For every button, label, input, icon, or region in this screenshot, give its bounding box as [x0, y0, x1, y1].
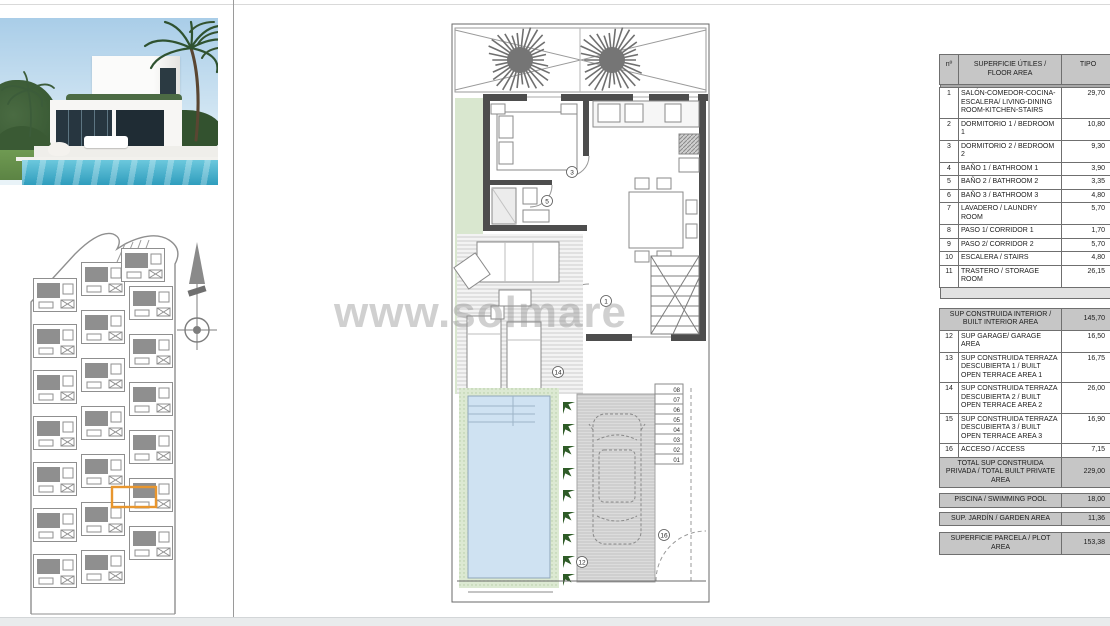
kitchen: [593, 101, 699, 172]
svg-text:06: 06: [673, 408, 680, 414]
swimming-pool: [468, 396, 550, 578]
svg-text:05: 05: [673, 418, 680, 424]
area-table: nºSUPERFICIE ÚTILES / FLOOR AREATIPO1SAL…: [940, 55, 1110, 555]
sheet-divider-line: [233, 0, 234, 617]
table-header-row: nºSUPERFICIE ÚTILES / FLOOR AREATIPO: [940, 54, 1110, 85]
table-row: 7LAVADERO / LAUNDRY ROOM5,70: [940, 202, 1110, 225]
driveway: [577, 394, 655, 582]
svg-text:01: 01: [673, 458, 680, 464]
table-row: 13SUP CONSTRUIDA TERRAZA DESCUBIERTA 1 /…: [940, 352, 1110, 384]
svg-text:1: 1: [604, 299, 608, 306]
table-row: 12SUP GARAGE/ GARAGE AREA16,50: [940, 330, 1110, 353]
svg-text:14: 14: [554, 370, 562, 377]
table-section-row: SUP. JARDÍN / GARDEN AREA11,36: [940, 512, 1110, 527]
plot-footprints: [34, 249, 173, 588]
drawing-sheet: 08 07 06 05 04 03 02 01 3 5 1 14 12 16 w…: [0, 0, 1110, 626]
table-row: 8PASO 1/ CORRIDOR 11,70: [940, 224, 1110, 239]
table-row: 15SUP CONSTRUIDA TERRAZA DESCUBIERTA 3 /…: [940, 413, 1110, 445]
table-section-row: PISCINA / SWIMMING POOL18,00: [940, 493, 1110, 508]
svg-text:5: 5: [545, 199, 549, 206]
stairs: [651, 256, 699, 334]
table-row: 3DORMITORIO 2 / BEDROOM 29,30: [940, 140, 1110, 163]
table-row: 2DORMITORIO 1 / BEDROOM 110,80: [940, 118, 1110, 141]
table-section-row: TOTAL SUP CONSTRUIDA PRIVADA / TOTAL BUI…: [940, 457, 1110, 489]
table-row: 5BAÑO 2 / BATHROOM 23,35: [940, 175, 1110, 190]
table-empty-row: [940, 287, 1110, 299]
north-arrow-compass: [177, 242, 217, 350]
svg-text:16: 16: [660, 533, 668, 540]
table-row: 11TRASTERO / STORAGE ROOM26,15: [940, 265, 1110, 288]
table-section-row: SUP CONSTRUIDA INTERIOR / BUILT INTERIOR…: [940, 308, 1110, 331]
svg-text:12: 12: [578, 560, 586, 567]
svg-text:3: 3: [570, 170, 574, 177]
svg-text:08: 08: [673, 388, 680, 394]
svg-text:07: 07: [673, 398, 680, 404]
sheet-top-rule: [0, 4, 1110, 5]
table-row: 9PASO 2/ CORRIDOR 25,70: [940, 238, 1110, 253]
table-row: 4BAÑO 1 / BATHROOM 13,90: [940, 162, 1110, 177]
table-row: 6BAÑO 3 / BATHROOM 34,80: [940, 189, 1110, 204]
svg-text:04: 04: [673, 428, 680, 434]
site-plan: [25, 222, 225, 618]
bedroom: [491, 104, 589, 176]
table-row: 10ESCALERA / STAIRS4,80: [940, 251, 1110, 266]
table-section-row: SUPERFICIE PARCELA / PLOT AREA153,38: [940, 532, 1110, 555]
svg-text:03: 03: [673, 438, 680, 444]
bottom-bar: [0, 617, 1110, 626]
table-row: 16ACCESO / ACCESS7,15: [940, 443, 1110, 458]
palm-trees-icon: [0, 18, 218, 185]
table-row: 1SALÓN-COMEDOR-COCINA-ESCALERA/ LIVING-D…: [940, 87, 1110, 119]
svg-text:02: 02: [673, 448, 680, 454]
table-row: 14SUP CONSTRUIDA TERRAZA DESCUBIERTA 2 /…: [940, 382, 1110, 414]
villa-photo: [0, 18, 218, 185]
floor-plan: 08 07 06 05 04 03 02 01 3 5 1 14 12 16: [443, 16, 718, 610]
dining-table: [629, 178, 697, 262]
